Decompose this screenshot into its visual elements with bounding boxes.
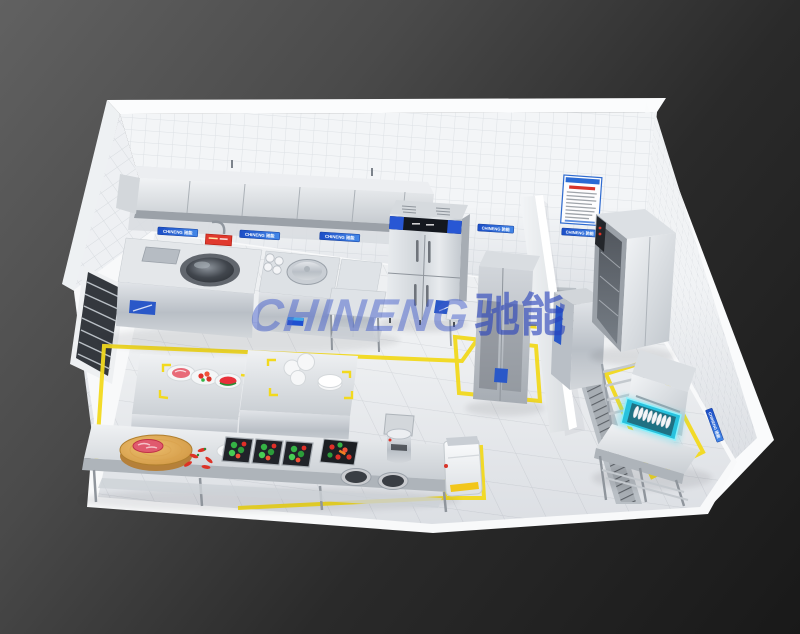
vegetable-sinks [222,437,313,467]
wok-bowl [186,258,234,283]
kitchen-scene: CHINENG 驰能 CHINENG 驰能 CHINENG 驰能 CHINENG… [0,0,800,634]
hood-left-cap [116,174,140,214]
range-sink [142,247,180,264]
rice-washer [384,414,414,463]
fridge-header-mark-1 [412,223,420,225]
back-wall-cap [107,98,666,114]
sink-3 [282,441,313,467]
stockpot-cooker [257,251,340,337]
rice-washer-lid [387,429,411,439]
flour-machine [444,436,482,496]
tall-cabinet-sticker [494,368,508,383]
brand-plate [205,234,232,246]
stockpot-front [257,292,333,337]
meat-slice [133,440,163,453]
prep-table-top [327,288,386,318]
flour-machine-label [444,464,448,468]
control-led-1 [599,227,602,230]
rice-washer-led [389,439,392,442]
sink-1 [222,437,253,463]
meat-portion [172,368,190,378]
control-led-2 [599,233,602,236]
rice-washer-slot [391,444,407,451]
sink-2 [252,439,283,465]
disinfection-right-face [621,233,676,352]
cutting-board [120,435,192,471]
cabinet-shadow [465,400,545,416]
disinfection-cabinet [592,209,676,352]
vegetable-tray [320,439,358,465]
kitchen-3d-render: CHINENG 驰能 CHINENG 驰能 CHINENG 驰能 CHINENG… [0,0,800,634]
hygiene-poster [561,175,602,226]
fridge-header-mark-2 [426,224,434,226]
stockpot-knob [304,266,310,272]
fridge-header-blue-right [447,220,462,234]
plate-stack-top [318,375,342,388]
wok-highlight [194,262,210,269]
fridge-header-blue-left [389,216,404,230]
